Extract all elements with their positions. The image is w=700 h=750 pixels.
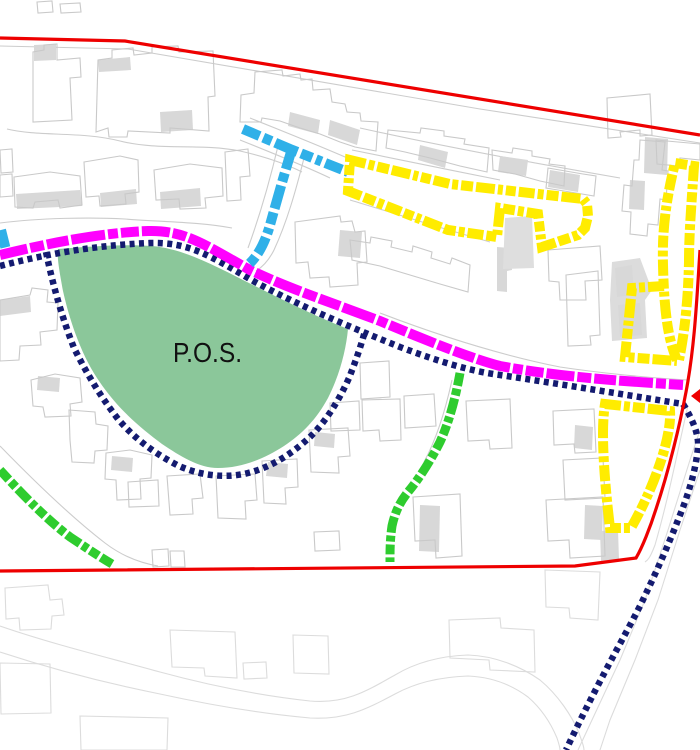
svg-text:P.O.S.: P.O.S. <box>173 337 242 368</box>
